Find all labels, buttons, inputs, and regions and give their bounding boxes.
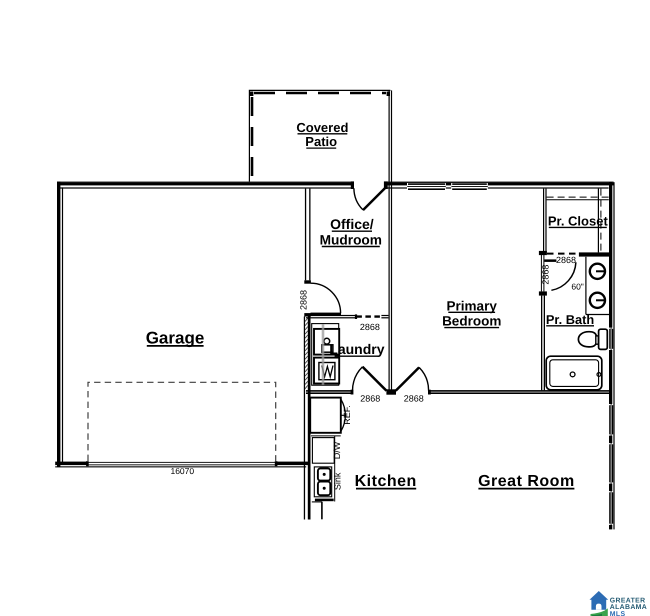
svg-text:2868: 2868 <box>299 290 309 310</box>
svg-text:2868: 2868 <box>360 394 380 404</box>
svg-text:2868: 2868 <box>360 322 380 332</box>
svg-text:MLS: MLS <box>610 611 626 616</box>
svg-text:Pr. Closet: Pr. Closet <box>548 213 609 228</box>
svg-text:60": 60" <box>571 281 583 291</box>
svg-text:2868: 2868 <box>540 265 550 285</box>
svg-text:Primary: Primary <box>447 298 498 313</box>
svg-text:2868: 2868 <box>404 394 424 404</box>
svg-text:D/W: D/W <box>332 441 342 459</box>
svg-text:Garage: Garage <box>146 329 205 348</box>
svg-text:Sink: Sink <box>333 472 343 490</box>
svg-text:Office/: Office/ <box>330 216 374 232</box>
svg-text:Patio: Patio <box>305 134 337 149</box>
svg-text:Bedroom: Bedroom <box>442 314 501 329</box>
svg-text:Pr. Bath: Pr. Bath <box>546 312 595 327</box>
svg-text:Kitchen: Kitchen <box>355 473 417 490</box>
svg-text:Great Room: Great Room <box>478 473 575 490</box>
svg-text:16070: 16070 <box>170 466 194 476</box>
svg-text:Covered: Covered <box>296 120 348 135</box>
svg-text:REF.: REF. <box>342 405 352 425</box>
svg-text:Laundry: Laundry <box>329 341 384 357</box>
svg-text:Mudroom: Mudroom <box>320 233 382 248</box>
svg-text:2868: 2868 <box>556 255 576 265</box>
